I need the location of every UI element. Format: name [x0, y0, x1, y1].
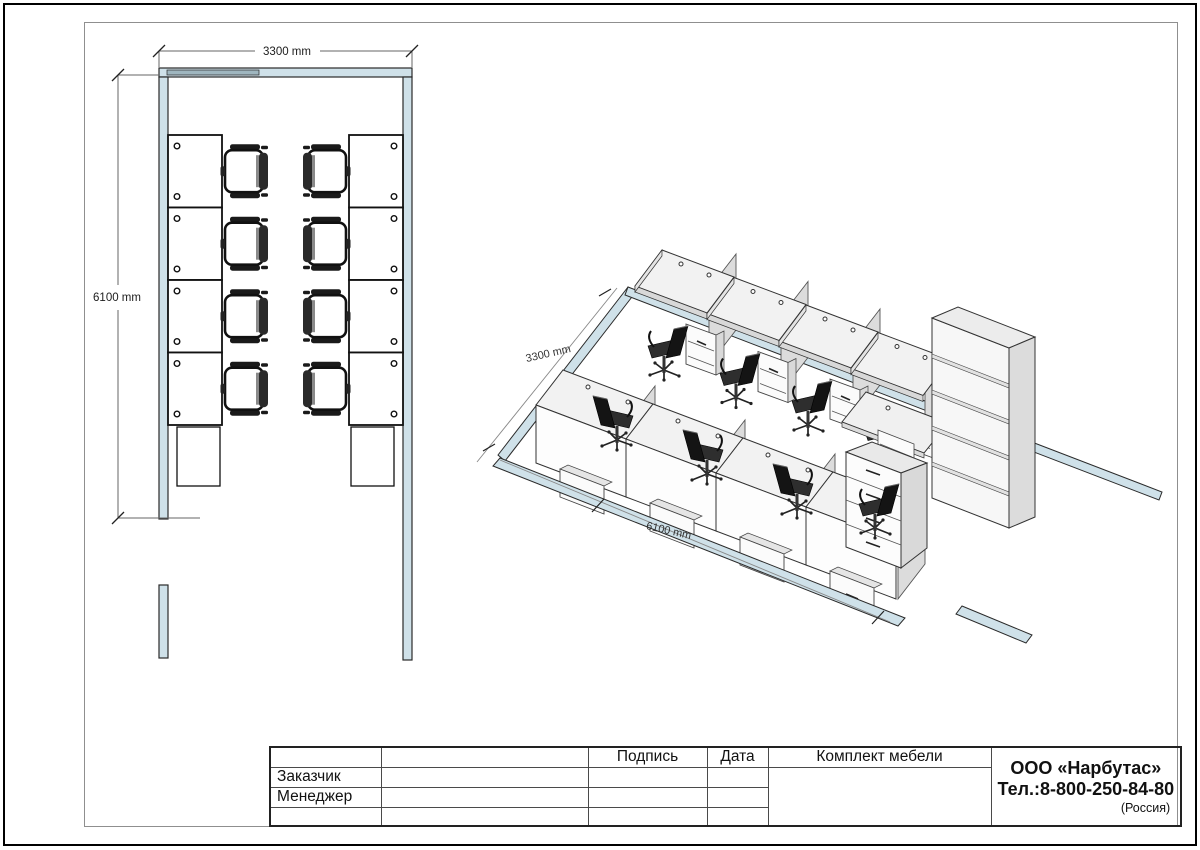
iso-wall-stub	[956, 606, 1032, 643]
plan-pedestal-left	[177, 427, 220, 486]
titleblock-customer-date	[707, 767, 768, 787]
iso-dim-width-label: 3300 mm	[525, 343, 572, 365]
titleblock-customer-value	[381, 767, 588, 787]
titleblock-cell-empty	[270, 747, 381, 767]
titleblock-signature-header: Подпись	[588, 747, 707, 767]
titleblock-cell-empty	[588, 807, 707, 826]
plan-wall-right	[403, 77, 412, 660]
plan-pedestal-right	[351, 427, 394, 486]
drawing-canvas: 3300 mm 6100 mm	[0, 0, 1200, 850]
plan-view: 3300 mm 6100 mm	[93, 45, 418, 660]
titleblock-customer-signature	[588, 767, 707, 787]
titleblock-manager-value	[381, 787, 588, 807]
plan-wall-stub	[159, 585, 168, 658]
iso-bookshelf	[932, 307, 1035, 528]
company-phone: Тел.:8-800-250-84-80	[998, 779, 1175, 801]
titleblock-manager-signature	[588, 787, 707, 807]
titleblock-date-header: Дата	[707, 747, 768, 767]
titleblock-company-cell: ООО «Нарбутас» Тел.:8-800-250-84-80 (Рос…	[991, 747, 1181, 826]
titleblock: Подпись Дата Комплект мебели ООО «Нарбут…	[269, 746, 1182, 827]
titleblock-cell-empty	[270, 807, 381, 826]
titleblock-cell-empty	[381, 747, 588, 767]
plan-chairs	[221, 144, 351, 416]
company-name: ООО «Нарбутас»	[998, 757, 1175, 780]
iso-view: 3300 mm 6100 mm	[477, 250, 1162, 643]
titleblock-set-body	[768, 767, 991, 826]
plan-wall-left	[159, 77, 168, 519]
plan-dim-length-label: 6100 mm	[93, 292, 141, 304]
titleblock-manager-date	[707, 787, 768, 807]
plan-desks-right	[349, 135, 403, 425]
titleblock-cell-empty	[381, 807, 588, 826]
plan-dim-width-label: 3300 mm	[263, 46, 311, 58]
drawing-sheet: 3300 mm 6100 mm	[0, 0, 1200, 850]
company-country: (Россия)	[998, 801, 1175, 816]
titleblock-set-header: Комплект мебели	[768, 747, 991, 767]
titleblock-cell-empty	[707, 807, 768, 826]
titleblock-manager-label: Менеджер	[270, 787, 381, 807]
titleblock-customer-label: Заказчик	[270, 767, 381, 787]
plan-desks-left	[168, 135, 222, 425]
plan-window	[167, 70, 259, 75]
